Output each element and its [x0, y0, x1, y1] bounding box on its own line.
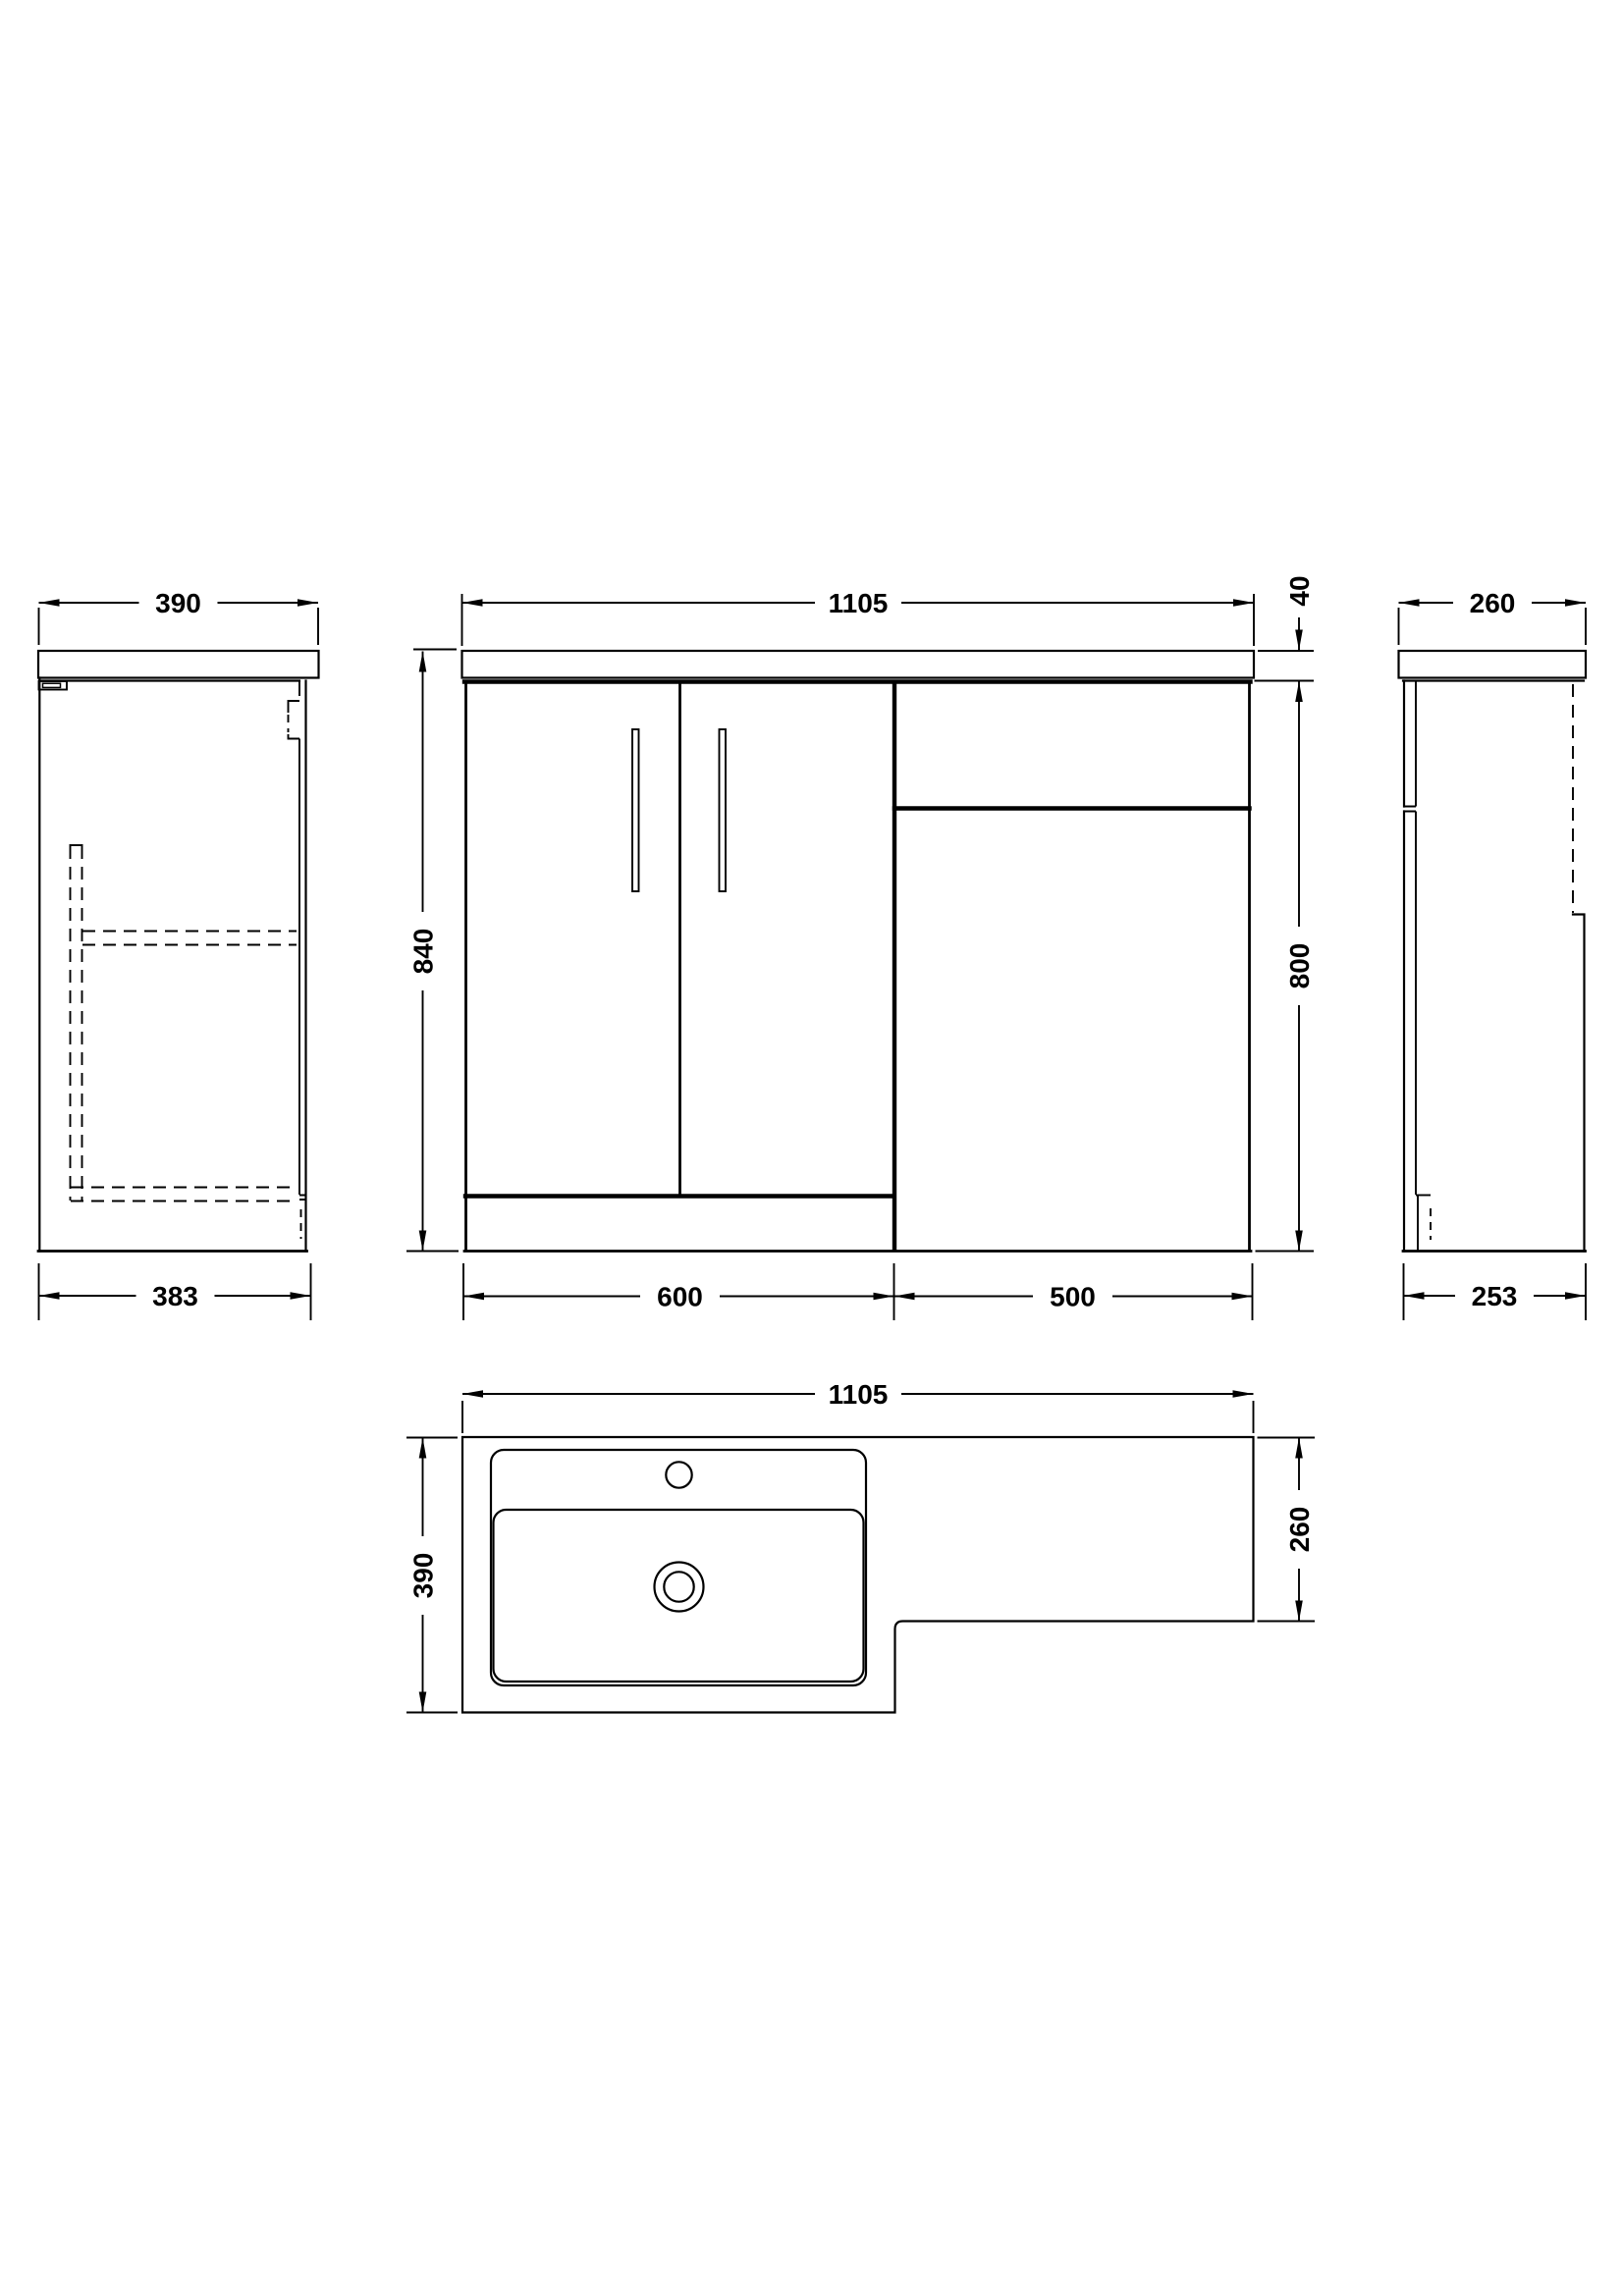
- dim-label-side-depth: 390: [155, 588, 201, 618]
- right-side-view: 260 253: [1399, 588, 1587, 1320]
- waste-outer: [655, 1563, 704, 1612]
- panel-break-ticks: [1404, 807, 1416, 812]
- dim-label-side-depth-bottom: 383: [152, 1281, 198, 1311]
- worktop-front: [462, 651, 1255, 678]
- dim-label-vanity-width: 600: [657, 1282, 703, 1312]
- hinge-step-2: [289, 734, 300, 739]
- page: 390 383 1105 840 40 800 60: [0, 0, 1623, 2296]
- door-handle-left: [632, 729, 639, 891]
- basin-outline: [491, 1450, 866, 1685]
- dim-label-worktop-thickness: 40: [1284, 575, 1315, 606]
- dim-label-plan-depth: 390: [408, 1553, 439, 1599]
- back-step: [1573, 915, 1585, 1252]
- door-handle-right: [720, 729, 727, 891]
- hinge-step: [289, 701, 300, 713]
- dim-label-plan-width: 1105: [829, 1379, 889, 1410]
- dim-label-width: 1105: [829, 588, 889, 618]
- waste-inner: [664, 1572, 693, 1601]
- basin-bowl: [494, 1510, 864, 1682]
- dim-label-plan-depth-right: 260: [1284, 1507, 1315, 1553]
- worktop-outline: [462, 1437, 1254, 1713]
- dim-label-total-height: 840: [408, 929, 439, 975]
- technical-drawing: 390 383 1105 840 40 800 60: [0, 0, 1623, 2296]
- worktop-side-right: [1399, 651, 1587, 678]
- front-view: 1105 840 40 800 600 500: [406, 575, 1315, 1320]
- dim-label-wc-width: 500: [1050, 1282, 1096, 1312]
- tap-hole: [666, 1462, 691, 1487]
- plan-view: 1105 390 260: [406, 1379, 1315, 1712]
- dim-label-wc-depth: 260: [1470, 588, 1516, 618]
- dim-label-wc-depth-bottom: 253: [1472, 1281, 1518, 1311]
- dim-label-cabinet-height: 800: [1284, 943, 1315, 989]
- hinge-plate-inner: [43, 683, 61, 687]
- worktop-side-left: [38, 651, 319, 678]
- left-side-view: 390 383: [38, 588, 319, 1320]
